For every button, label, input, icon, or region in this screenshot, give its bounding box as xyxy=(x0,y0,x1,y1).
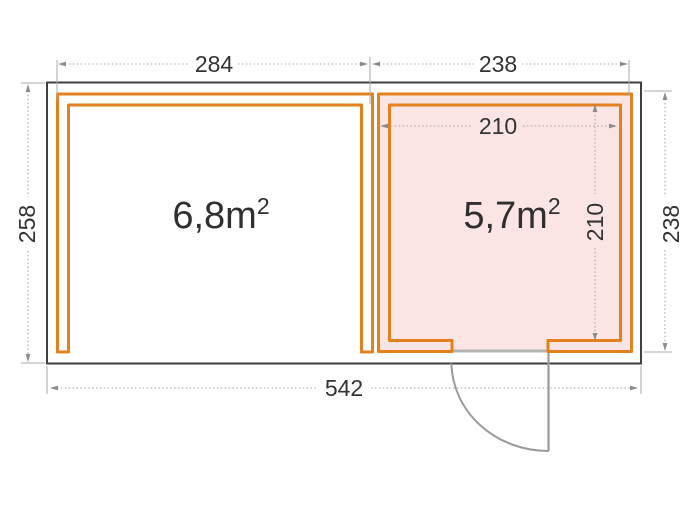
dimension-top-right-width: 238 xyxy=(372,51,629,96)
arrow-left-icon xyxy=(372,62,380,67)
dimension-label-left: 258 xyxy=(14,205,40,243)
arrow-right-icon xyxy=(630,386,638,391)
room-area-exponent-right: 2 xyxy=(548,193,561,219)
dimension-label-top-right: 238 xyxy=(479,51,517,77)
arrow-left-icon xyxy=(58,62,66,67)
arrow-down-icon xyxy=(26,354,31,362)
dimension-left-height: 258 xyxy=(14,83,45,363)
floor-plan-page: 284 238 258 238 542 xyxy=(0,0,700,525)
arrow-up-icon xyxy=(26,84,31,92)
arrow-right-icon xyxy=(360,62,368,67)
dimension-label-inner-width: 210 xyxy=(479,113,517,139)
dimension-right-height: 238 xyxy=(644,91,684,352)
door xyxy=(452,353,549,451)
dimension-label-right: 238 xyxy=(658,205,684,243)
room-area-label-left: 6,8m2 xyxy=(172,193,269,237)
room-area-exponent-left: 2 xyxy=(257,193,270,219)
dimension-top-left-width: 284 xyxy=(57,51,370,104)
dimension-total-width: 542 xyxy=(47,366,641,401)
dimension-label-bottom: 542 xyxy=(325,375,363,401)
dimension-label-inner-height: 210 xyxy=(582,203,608,241)
door-swing-arc xyxy=(452,364,549,452)
room-area-label-right: 5,7m2 xyxy=(463,193,560,237)
arrow-right-icon xyxy=(620,62,628,67)
room-area-value-right: 5,7m xyxy=(463,195,547,237)
dimension-label-top-left: 284 xyxy=(195,51,234,77)
floor-plan-canvas: 284 238 258 238 542 xyxy=(0,0,700,525)
arrow-left-icon xyxy=(50,386,58,391)
arrow-down-icon xyxy=(663,343,668,351)
room-area-value-left: 6,8m xyxy=(172,195,256,237)
arrow-up-icon xyxy=(663,92,668,100)
